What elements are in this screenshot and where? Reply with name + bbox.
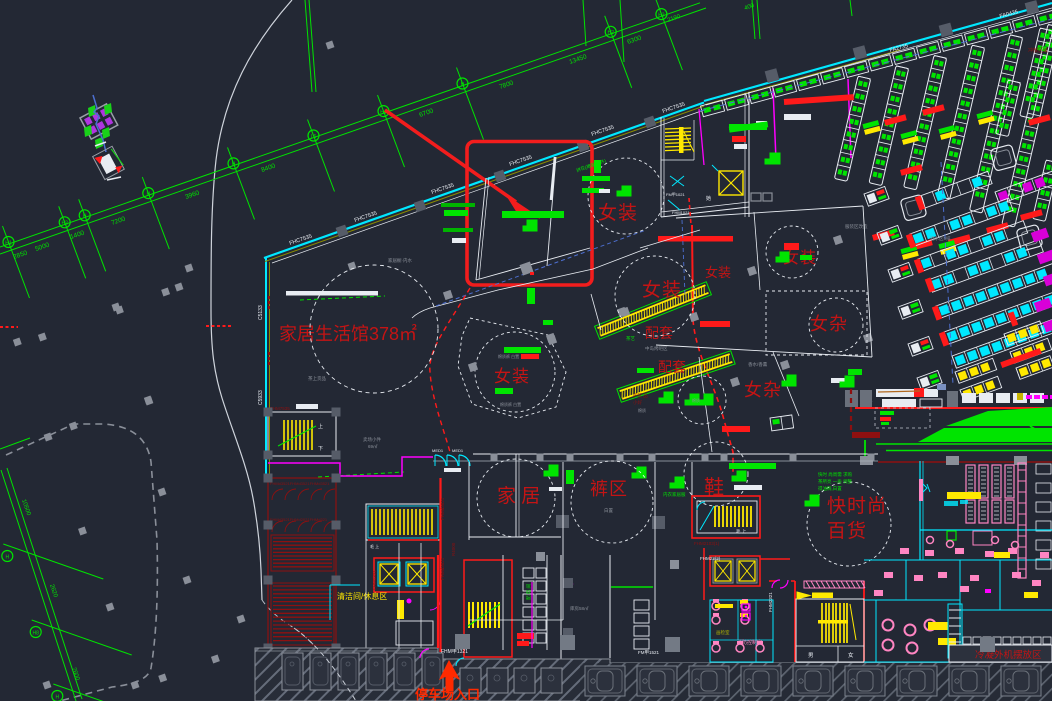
svg-text:毛 上: 毛 上 <box>370 543 379 549</box>
svg-text:FHM2321: FHM2321 <box>768 592 773 612</box>
svg-text:H: H <box>146 191 150 197</box>
svg-text:酒水区5排: 酒水区5排 <box>930 235 951 242</box>
svg-text:MED1: MED1 <box>432 448 444 453</box>
svg-text:H8: H8 <box>32 630 39 636</box>
svg-text:清洁间/休息区: 清洁间/休息区 <box>337 591 387 601</box>
svg-text:毛 上: 毛 上 <box>736 528 747 534</box>
svg-text:H: H <box>232 162 236 168</box>
svg-text:家居橱·内水: 家居橱·内水 <box>388 257 412 264</box>
svg-text:冲散区域: 冲散区域 <box>1028 47 1048 54</box>
svg-text:H2: H2 <box>607 30 614 36</box>
svg-text:棉质: 棉质 <box>692 397 700 403</box>
svg-text:配套: 配套 <box>645 325 673 341</box>
svg-text:消防控制室: 消防控制室 <box>737 639 762 646</box>
svg-text:库房58㎡: 库房58㎡ <box>570 605 589 612</box>
svg-text:棉质裤 白置: 棉质裤 白置 <box>498 353 519 359</box>
svg-text:女装: 女装 <box>598 202 638 224</box>
svg-text:FHM23(2): FHM23(2) <box>700 556 721 561</box>
svg-text:护玩 品: 护玩 品 <box>633 392 648 399</box>
svg-text:上: 上 <box>318 423 323 430</box>
svg-text:棉质裤 白置: 棉质裤 白置 <box>500 401 521 407</box>
svg-text:H: H <box>55 694 59 700</box>
svg-text:FHMd3521FHMd3521FHMd3521: FHMd3521FHMd3521FHMd3521 <box>270 481 330 486</box>
svg-text:H: H <box>5 554 9 560</box>
svg-text:家居生活馆378㎡: 家居生活馆378㎡ <box>279 323 417 344</box>
svg-text:H2: H2 <box>61 221 68 227</box>
svg-text:MED1: MED1 <box>452 448 464 453</box>
svg-text:H3: H3 <box>658 12 665 18</box>
svg-text:男: 男 <box>808 652 814 659</box>
svg-text:FHM2103(1): FHM2103(1) <box>694 541 720 546</box>
svg-text:女装: 女装 <box>642 279 682 301</box>
svg-text:女杂: 女杂 <box>810 314 848 334</box>
svg-text:FHMd3521: FHMd3521 <box>440 557 445 580</box>
svg-text:FHM7535: FHM7535 <box>270 406 290 411</box>
svg-text:香水/香薰: 香水/香薰 <box>748 361 768 368</box>
svg-text:内衣家居服: 内衣家居服 <box>663 491 686 498</box>
svg-text:H: H <box>461 82 465 88</box>
svg-text:停车场入口: 停车场入口 <box>415 687 480 701</box>
svg-text:FM甲1021: FM甲1021 <box>666 192 685 197</box>
svg-text:女杂: 女杂 <box>744 380 782 400</box>
svg-text:中岛烤吧区: 中岛烤吧区 <box>645 345 668 352</box>
svg-text:下: 下 <box>318 446 323 452</box>
svg-text:FHMd3521FHMd2021FHMd321: FHMd3521FHMd2021FHMd321 <box>270 517 328 522</box>
svg-text:女装: 女装 <box>494 367 530 386</box>
svg-text:家 居: 家 居 <box>497 485 540 507</box>
svg-text:茶上货品: 茶上货品 <box>308 375 326 382</box>
svg-text:茶所亮 一质 调整: 茶所亮 一质 调整 <box>818 478 852 485</box>
svg-text:L6: L6 <box>311 134 317 140</box>
svg-text:卖场小件: 卖场小件 <box>363 436 381 443</box>
svg-text:茶艺: 茶艺 <box>626 335 635 341</box>
svg-text:C5133: C5133 <box>258 305 264 320</box>
svg-text:得油碗,白置: 得油碗,白置 <box>818 485 842 492</box>
svg-text:女装: 女装 <box>705 265 731 280</box>
svg-text:H1: H1 <box>5 240 12 246</box>
svg-text:她: 她 <box>706 195 711 202</box>
svg-text:FHM1321: FHM1321 <box>372 570 377 590</box>
svg-text:快时 尚周需 求购: 快时 尚周需 求购 <box>818 471 852 478</box>
svg-text:女: 女 <box>848 651 854 659</box>
svg-text:配套: 配套 <box>658 359 686 375</box>
svg-text:R4000: R4000 <box>451 542 456 556</box>
svg-text:棉质: 棉质 <box>638 407 646 413</box>
svg-text:69㎡: 69㎡ <box>368 443 378 449</box>
svg-text:小好: 小好 <box>633 399 642 406</box>
svg-text:百货: 百货 <box>827 520 867 542</box>
svg-text:快时尚: 快时尚 <box>827 495 887 517</box>
svg-text:裤区: 裤区 <box>590 479 628 499</box>
svg-text:FHM1021: FHM1021 <box>672 210 690 215</box>
svg-text:画检室: 画检室 <box>716 629 730 636</box>
svg-text:FHM甲1321: FHM甲1321 <box>441 649 468 655</box>
svg-text:C5933: C5933 <box>258 390 264 405</box>
svg-text:FHMd3521: FHMd3521 <box>440 497 445 520</box>
svg-text:H: H <box>83 214 87 220</box>
svg-text:配 电 间: 配 电 间 <box>525 583 532 600</box>
svg-text:白置: 白置 <box>604 507 613 514</box>
